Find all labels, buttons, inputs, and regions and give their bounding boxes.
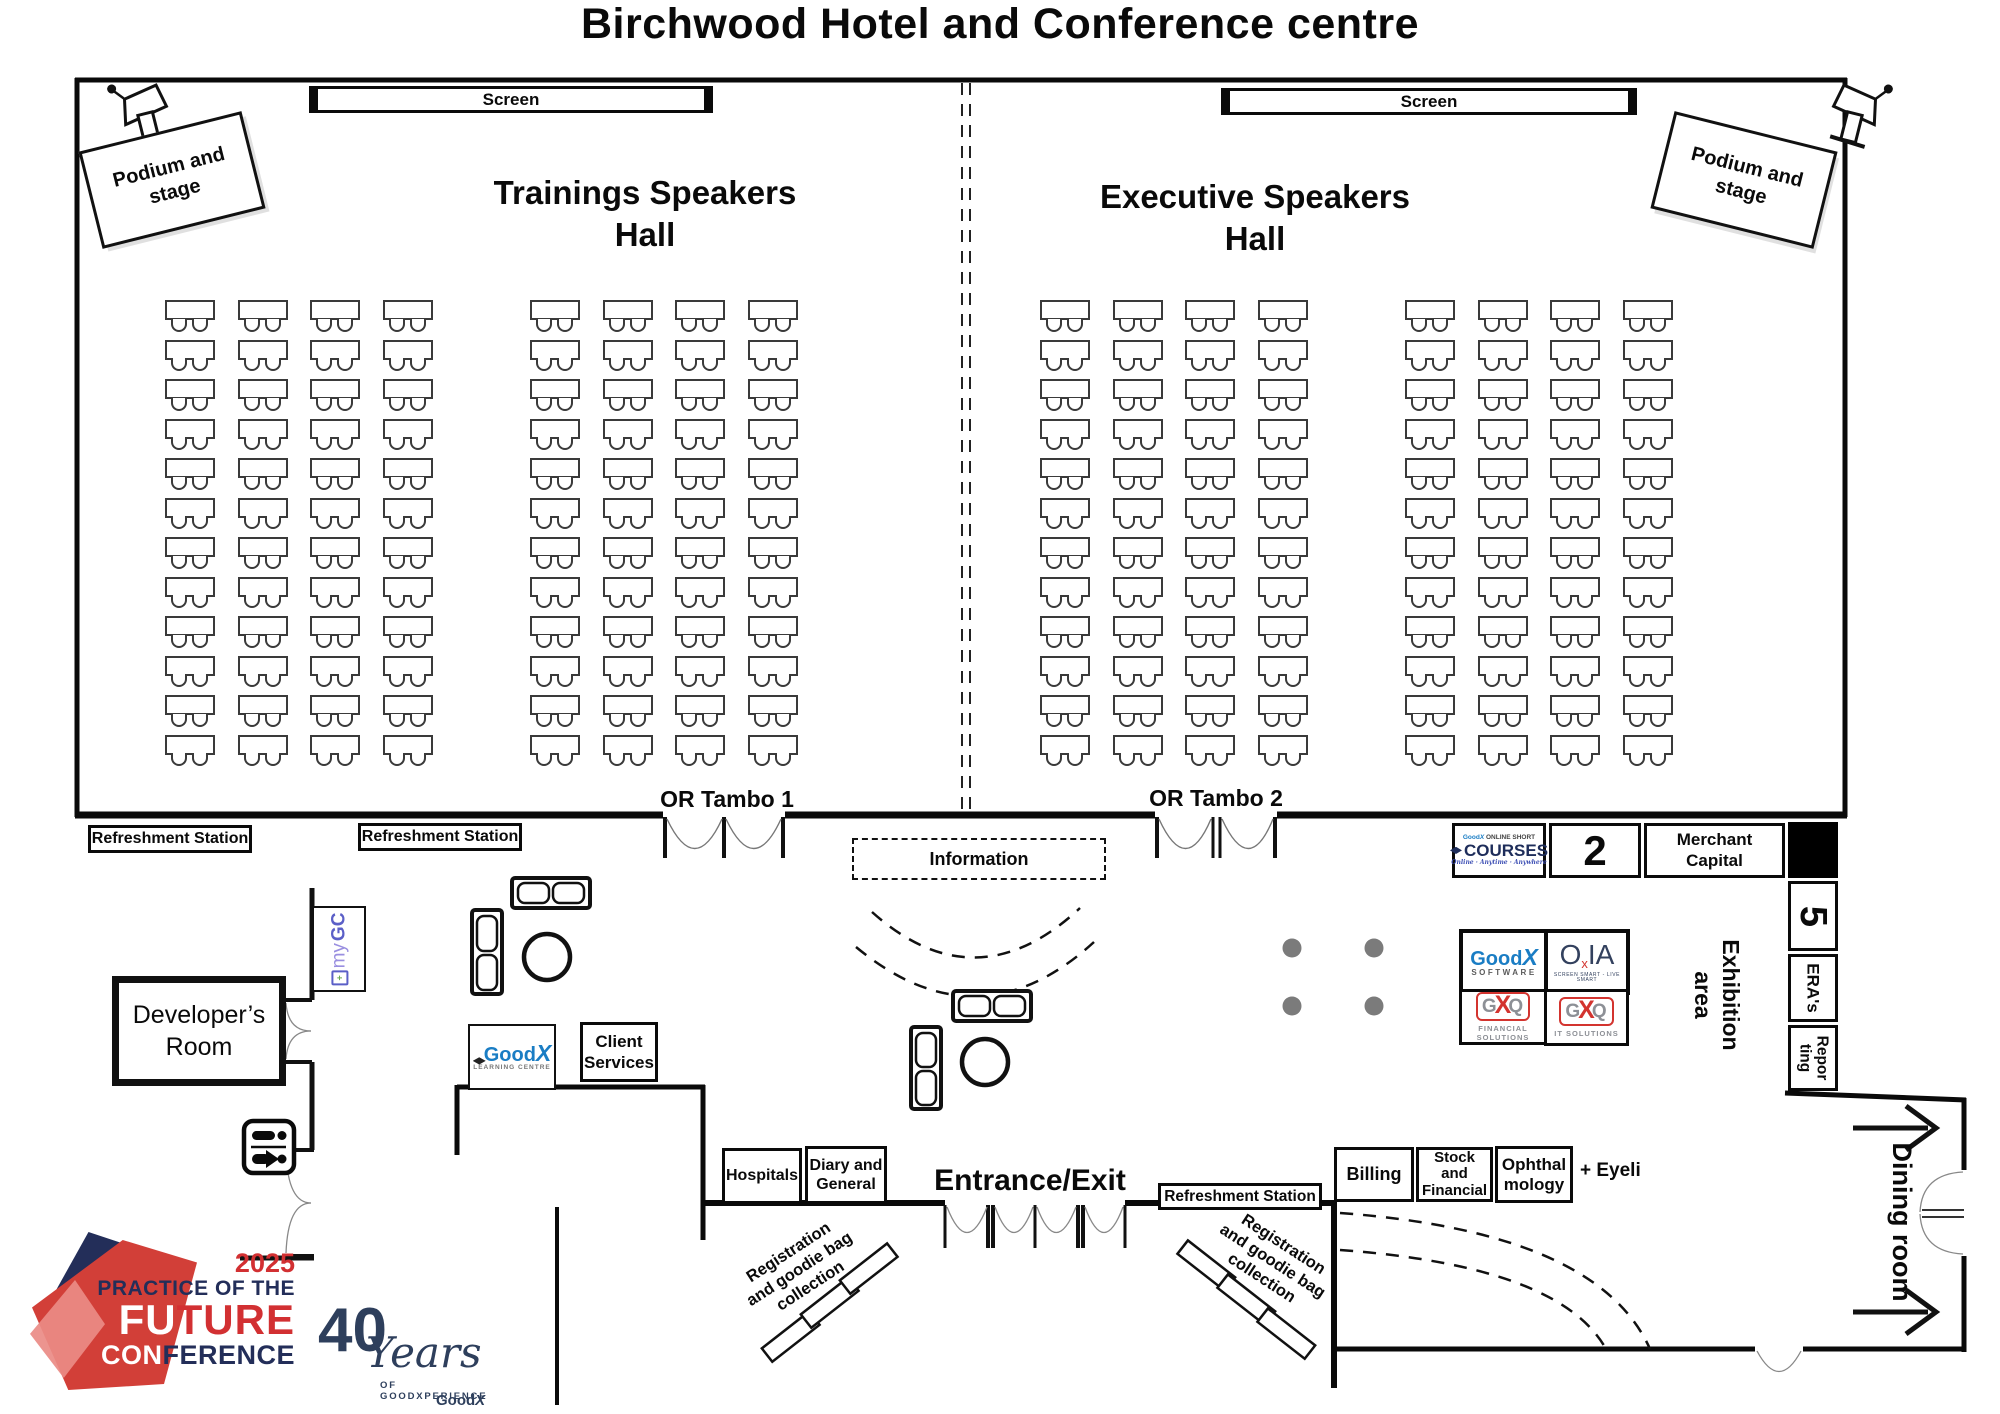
seat-table (1405, 300, 1455, 334)
seat-table (675, 300, 725, 334)
seat-table (165, 498, 215, 532)
seat-table (1040, 537, 1090, 571)
screen-left-label: Screen (483, 90, 540, 110)
seat-table (310, 656, 360, 690)
seat-table (1040, 695, 1090, 729)
seat-table (1550, 340, 1600, 374)
seat-table (1258, 616, 1308, 650)
ophthalmology-stand: Ophthal mology (1495, 1146, 1573, 1203)
seat-table (530, 300, 580, 334)
seat-table (748, 616, 798, 650)
seat-table (238, 379, 288, 413)
merchant-capital-stand: Merchant Capital (1644, 823, 1785, 878)
seat-table (1113, 498, 1163, 532)
seat-table (1405, 498, 1455, 532)
seat-table (1550, 695, 1600, 729)
seat-table (1185, 379, 1235, 413)
seat-table (383, 656, 433, 690)
seat-table (383, 616, 433, 650)
seat-table (748, 340, 798, 374)
lounge-left (472, 878, 590, 994)
seat-table (383, 498, 433, 532)
information-queue-arc-2 (856, 942, 1094, 996)
seat-table (1623, 419, 1673, 453)
seat-table (675, 577, 725, 611)
seat-table (1478, 577, 1528, 611)
seat-table (1258, 300, 1308, 334)
seat-table (1478, 419, 1528, 453)
seat-table (603, 695, 653, 729)
seat-table (1550, 656, 1600, 690)
seat-table (530, 498, 580, 532)
seat-table (310, 695, 360, 729)
seat-table (530, 419, 580, 453)
seat-table (383, 300, 433, 334)
seat-table (530, 735, 580, 769)
seat-table (1405, 419, 1455, 453)
mygc-icon: + (331, 970, 348, 985)
seat-table (1040, 735, 1090, 769)
seat-table (1623, 498, 1673, 532)
pof-line3: CONFERENCE (101, 1342, 295, 1370)
graduation-cap-icon (1450, 847, 1462, 855)
seat-table (1113, 577, 1163, 611)
solid-block (1788, 822, 1838, 878)
seat-table (530, 458, 580, 492)
seat-table (1405, 379, 1455, 413)
entrance-doors (945, 1205, 1125, 1248)
courses-tagline: Online · Anytime · Anywhere (1450, 860, 1548, 866)
mygc-my: my (328, 943, 350, 968)
courses-label: COURSES (1464, 842, 1548, 860)
floor-plan: Birchwood Hotel and Conference centre Sc… (0, 0, 2000, 1414)
seat-table (1478, 498, 1528, 532)
seat-table (1623, 379, 1673, 413)
page-title: Birchwood Hotel and Conference centre (0, 0, 2000, 49)
seat-table (310, 577, 360, 611)
goodx-learning-centre-tile: GoodX LEARNING CENTRE (468, 1024, 556, 1090)
seat-table (675, 735, 725, 769)
seat-table (383, 379, 433, 413)
seat-table (1113, 656, 1163, 690)
seat-table (748, 695, 798, 729)
seat-table (238, 695, 288, 729)
seat-table (383, 537, 433, 571)
seat-table (530, 695, 580, 729)
seat-table (603, 300, 653, 334)
hospitals-stand: Hospitals (722, 1148, 802, 1204)
seat-table (310, 458, 360, 492)
seat-table (1623, 656, 1673, 690)
screen-right-label: Screen (1401, 92, 1458, 112)
seat-table (748, 656, 798, 690)
seat-table (675, 695, 725, 729)
seat-table (165, 419, 215, 453)
seat-table (1258, 419, 1308, 453)
seat-table (1550, 300, 1600, 334)
seat-table (383, 340, 433, 374)
or-tambo-1-door (665, 817, 783, 858)
or-tambo-2-door (1157, 817, 1275, 858)
seat-table (238, 300, 288, 334)
seat-table (1185, 419, 1235, 453)
seat-table (1550, 735, 1600, 769)
seat-table (238, 458, 288, 492)
seat-table (748, 419, 798, 453)
seat-table (603, 458, 653, 492)
seat-table (1185, 458, 1235, 492)
seat-table (530, 656, 580, 690)
pof-line2: FUTURE (119, 1299, 295, 1342)
seat-table (165, 695, 215, 729)
seat-table (530, 340, 580, 374)
seat-table (1113, 340, 1163, 374)
seat-table (1258, 735, 1308, 769)
seat-table (238, 616, 288, 650)
or-tambo-1-label: OR Tambo 1 (627, 786, 827, 813)
seat-table (603, 537, 653, 571)
seat-table (1623, 537, 1673, 571)
seat-table (310, 300, 360, 334)
seat-table (675, 656, 725, 690)
round-table (962, 1039, 1008, 1085)
hall-name-right: Executive Speakers Hall (1055, 176, 1455, 260)
seat-table (165, 458, 215, 492)
lounge-centre (911, 991, 1031, 1109)
seat-table (1478, 340, 1528, 374)
seat-table (1478, 300, 1528, 334)
seat-table (238, 735, 288, 769)
seat-table (1623, 577, 1673, 611)
seat-table (530, 577, 580, 611)
seat-table (1478, 656, 1528, 690)
seat-table (1113, 379, 1163, 413)
screen-left: Screen (310, 86, 712, 113)
seat-table (1113, 419, 1163, 453)
seat-table (1623, 735, 1673, 769)
or-tambo-2-label: OR Tambo 2 (1116, 785, 1316, 812)
seat-table (1040, 616, 1090, 650)
seat-table (1040, 656, 1090, 690)
podium-icon-right (1826, 73, 1893, 150)
seat-table (1258, 695, 1308, 729)
seat-table (1040, 419, 1090, 453)
seat-table (1113, 735, 1163, 769)
seat-table (383, 419, 433, 453)
seat-table (603, 498, 653, 532)
seat-table (1478, 537, 1528, 571)
refreshment-station-left: Refreshment Station (88, 825, 252, 853)
seat-table (1040, 458, 1090, 492)
seat-table (1405, 695, 1455, 729)
seat-table (603, 379, 653, 413)
dining-room-label: Dining room (1882, 1137, 1922, 1307)
gxq-financial-tile: GXQ FINANCIAL SOLUTIONS (1459, 989, 1547, 1045)
seat-table (1040, 577, 1090, 611)
seat-table (1185, 577, 1235, 611)
seat-table (1405, 458, 1455, 492)
seat-table (165, 379, 215, 413)
seat-table (383, 458, 433, 492)
seat-table (1113, 458, 1163, 492)
seat-table (1478, 695, 1528, 729)
seat-table (1405, 577, 1455, 611)
seat-table (1185, 537, 1235, 571)
seat-table (1478, 458, 1528, 492)
seat-table (310, 735, 360, 769)
seat-table (748, 537, 798, 571)
seat-table (748, 735, 798, 769)
seat-table (1550, 577, 1600, 611)
seat-table (1258, 458, 1308, 492)
information-queue-arc-1 (872, 908, 1080, 958)
seat-table (1550, 616, 1600, 650)
seat-table (603, 577, 653, 611)
seat-table (238, 419, 288, 453)
seat-table (603, 735, 653, 769)
seat-table (1623, 300, 1673, 334)
seat-table (310, 616, 360, 650)
seat-table (675, 616, 725, 650)
courses-stand: GoodX ONLINE SHORT COURSES Online · Anyt… (1452, 823, 1546, 878)
seat-table (1258, 656, 1308, 690)
dining-room-doors (1757, 1172, 1964, 1372)
seat-table (1258, 577, 1308, 611)
seat-table (165, 656, 215, 690)
screen-right: Screen (1222, 88, 1636, 115)
gxq-it-tile: GXQ IT SOLUTIONS (1544, 989, 1629, 1046)
round-table (524, 934, 570, 980)
forty-brand: GoodX (436, 1392, 485, 1409)
seat-table (238, 498, 288, 532)
seat-table (675, 419, 725, 453)
mygc-gc: GC (328, 913, 350, 942)
hall-divider (962, 83, 970, 812)
seat-table (1040, 340, 1090, 374)
stand-5: 5 (1788, 881, 1838, 951)
seat-table (530, 537, 580, 571)
seat-table (675, 379, 725, 413)
seat-table (238, 340, 288, 374)
hall-name-left: Trainings Speakers Hall (445, 172, 845, 256)
client-services: Client Services (580, 1022, 658, 1082)
seat-table (1550, 458, 1600, 492)
seat-table (165, 340, 215, 374)
seat-table (603, 656, 653, 690)
entrance-exit-label: Entrance/Exit (930, 1163, 1130, 1199)
seat-table (383, 735, 433, 769)
seat-table (748, 498, 798, 532)
seat-table (1258, 379, 1308, 413)
seat-table (1185, 735, 1235, 769)
seat-table (1113, 695, 1163, 729)
seat-table (238, 577, 288, 611)
seat-table (1623, 340, 1673, 374)
billing-queue-arc-1 (1340, 1213, 1650, 1349)
billing-stand: Billing (1334, 1147, 1414, 1202)
seat-table (1040, 300, 1090, 334)
seat-table (1405, 735, 1455, 769)
exhibition-pillars (1283, 939, 1384, 1016)
seat-table (310, 340, 360, 374)
seat-table (1550, 419, 1600, 453)
seat-table (1185, 300, 1235, 334)
seat-table (1623, 695, 1673, 729)
seat-table (1185, 695, 1235, 729)
seat-table (1040, 379, 1090, 413)
seat-table (383, 577, 433, 611)
seat-table (603, 616, 653, 650)
goodx-software-tile: GoodX SOFTWARE (1459, 929, 1549, 994)
eyeli-label: + Eyeli (1580, 1160, 1670, 1182)
seat-table (1405, 656, 1455, 690)
seat-table (1478, 616, 1528, 650)
seat-table (603, 419, 653, 453)
seat-table (1478, 379, 1528, 413)
seat-table (1623, 458, 1673, 492)
seat-table (1405, 537, 1455, 571)
seat-table (1258, 498, 1308, 532)
seat-table (310, 537, 360, 571)
seat-table (1040, 498, 1090, 532)
seat-table (1185, 616, 1235, 650)
seat-table (748, 300, 798, 334)
seat-table (1623, 616, 1673, 650)
seat-table (1185, 340, 1235, 374)
seat-table (1185, 656, 1235, 690)
seat-table (1550, 498, 1600, 532)
information-booth: Information (852, 838, 1106, 880)
seat-table (675, 537, 725, 571)
pof-conference-logo: 2025 PRACTICE OF THE FUTURE CONFERENCE (30, 1228, 300, 1403)
seat-table (675, 340, 725, 374)
seat-table (165, 537, 215, 571)
exhibition-area-label: Exhibition area (1676, 895, 1756, 1095)
seat-table (165, 300, 215, 334)
seat-table (603, 340, 653, 374)
forty-years-script: Years (366, 1328, 482, 1377)
seat-table (1550, 379, 1600, 413)
mygc-stand: + myGC (312, 906, 366, 992)
oxia-tile: OxIA SCREEN SMART - LIVE SMART (1544, 929, 1630, 995)
seat-table (165, 735, 215, 769)
seat-table (165, 577, 215, 611)
reporting-stand: Repor ting (1788, 1025, 1838, 1091)
seat-table (310, 498, 360, 532)
seat-table (165, 616, 215, 650)
seat-table (1405, 340, 1455, 374)
stand-2: 2 (1549, 823, 1641, 878)
stock-financial-stand: Stock and Financial (1416, 1147, 1493, 1202)
courses-goodx: Good (1463, 834, 1480, 841)
forty-years-logo: 40 Years OF GOODXPERIENCE GoodX (318, 1296, 488, 1406)
seat-table (1405, 616, 1455, 650)
seat-table (1258, 537, 1308, 571)
seat-table (310, 419, 360, 453)
seat-table (1550, 537, 1600, 571)
seat-table (1185, 498, 1235, 532)
seat-table (1113, 300, 1163, 334)
eras-stand: ERA's (1788, 954, 1838, 1022)
seat-table (383, 695, 433, 729)
seat-table (530, 379, 580, 413)
seat-table (310, 379, 360, 413)
seat-table (1478, 735, 1528, 769)
seat-table (238, 537, 288, 571)
seat-table (675, 498, 725, 532)
developers-room: Developer’s Room (112, 976, 286, 1086)
seat-table (530, 616, 580, 650)
seat-table (675, 458, 725, 492)
seat-table (1258, 340, 1308, 374)
restroom-icon (244, 1121, 294, 1173)
seat-table (238, 656, 288, 690)
seat-table (1113, 616, 1163, 650)
refreshment-station-mid: Refreshment Station (358, 823, 522, 851)
seat-table (1113, 537, 1163, 571)
seat-table (748, 458, 798, 492)
seat-table (748, 379, 798, 413)
pof-year: 2025 (235, 1250, 295, 1278)
seat-table (748, 577, 798, 611)
